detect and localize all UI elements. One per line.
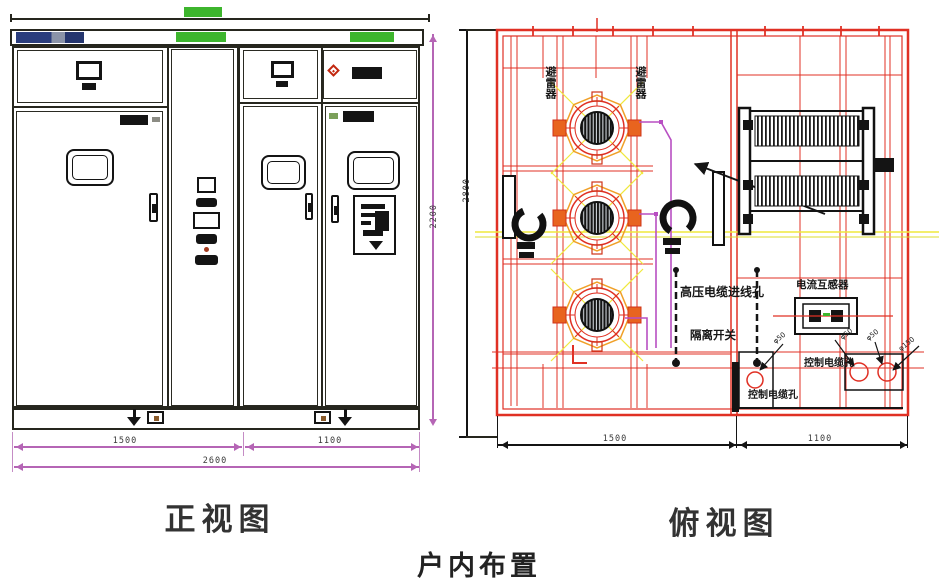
dim-arrow <box>411 463 422 471</box>
door-b-nameplate <box>343 111 374 122</box>
top-dim-1500: 1500 <box>580 435 650 444</box>
red-indicator-dot <box>332 69 335 72</box>
label-arrester-left: 避雷器 <box>542 66 558 114</box>
top-dim-1100: 1100 <box>785 435 855 444</box>
front-view-title: 正视图 <box>160 494 280 539</box>
left-door-tag <box>152 117 160 122</box>
meter-icon-left <box>76 61 102 80</box>
label-isolator: 隔离开关 <box>690 327 736 343</box>
plinth-arrow-2 <box>338 417 352 426</box>
roof-green-strip <box>184 7 222 17</box>
column-button-2 <box>196 234 217 244</box>
top-dim-2800: 2800 <box>463 166 472 214</box>
column-meter-rect <box>193 212 220 229</box>
dim-arrow <box>900 441 911 449</box>
label-current-transformer: 电流互感器 <box>796 277 849 292</box>
dim-arrow <box>736 441 747 449</box>
compartment-b-display <box>352 67 382 79</box>
column-meter-square <box>197 177 216 193</box>
label-control-hole-1: 控制电缆孔 <box>804 354 854 369</box>
mimic-arrow <box>369 241 383 250</box>
mimic-block <box>375 211 389 231</box>
mimic-bar-3 <box>361 221 371 225</box>
front-dim-1500: 1500 <box>90 437 160 446</box>
front-dim-2600: 2600 <box>180 457 250 466</box>
page-caption: 户内布置 <box>404 544 554 582</box>
right-cabinet-divider <box>321 46 323 410</box>
plinth-arrow-1 <box>127 417 141 426</box>
dim-line-2600 <box>14 466 419 468</box>
cabinet-separator <box>237 46 240 410</box>
plinth-box-2-dot <box>321 416 326 421</box>
cap-green-strip-2 <box>350 32 394 42</box>
operator-left <box>503 176 549 258</box>
label-arrester-right: 避雷器 <box>632 66 648 114</box>
phase-coil-1 <box>551 82 643 174</box>
meter-base-right <box>276 81 288 87</box>
bank-terminal-stub <box>874 158 894 172</box>
dim-arrow <box>429 31 437 42</box>
label-control-hole-2: 控制电缆孔 <box>748 386 798 401</box>
phase-coil-3 <box>551 269 643 361</box>
top-view-title: 俯视图 <box>664 498 784 543</box>
door-a-window-inner <box>267 161 300 184</box>
left-door-nameplate <box>120 115 148 125</box>
dim-arrow <box>12 463 23 471</box>
left-door-window-inner <box>72 155 108 180</box>
tv-dim-line-1100 <box>737 444 907 446</box>
column-red-dot <box>204 247 209 252</box>
dim-line-1500 <box>14 446 242 448</box>
resistor-bank <box>739 108 894 234</box>
dim-arrow <box>411 443 422 451</box>
left-compartment-bottom-line <box>14 106 167 108</box>
tv-dim-line-1500 <box>498 444 736 446</box>
door-a-handle <box>305 193 313 220</box>
column-button-3 <box>195 255 218 265</box>
dim-line-1100 <box>245 446 419 448</box>
cabinet-plinth <box>12 406 420 430</box>
door-b-window-inner <box>353 157 394 184</box>
left-door-handle <box>149 193 158 222</box>
phase-coil-2 <box>551 172 643 264</box>
dim-arrow <box>429 419 437 430</box>
label-cable-entry: 高压电缆进线孔 <box>680 283 764 300</box>
nameplate-blue <box>16 32 84 43</box>
right-cabinet-door-a <box>243 106 318 406</box>
dim-arrow <box>243 443 254 451</box>
left-cabinet-column-divider <box>167 46 169 410</box>
plinth-box-1-dot <box>154 416 159 421</box>
door-a-handle-grip <box>308 203 311 212</box>
plinth-box-1 <box>147 411 164 424</box>
meter-icon-right <box>271 61 294 78</box>
cap-green-strip-1 <box>176 32 226 42</box>
top-boundary-tick-left <box>10 14 12 22</box>
mimic-bar-1 <box>361 204 385 209</box>
column-button-1 <box>196 198 217 207</box>
front-dim-1100: 1100 <box>295 437 365 446</box>
right-compartment-bottom-line <box>240 102 418 104</box>
dim-line-2800 <box>466 30 468 438</box>
drawing-sheet: 1500 1100 2600 2200 2800 <box>0 0 944 582</box>
left-door-handle-grip <box>152 204 156 213</box>
door-b-handle <box>331 195 339 223</box>
door-b-handle-grip <box>334 206 337 215</box>
front-dim-2200: 2200 <box>430 192 439 240</box>
dim-arrow <box>12 443 23 451</box>
top-boundary-tick-right <box>428 14 430 22</box>
top-boundary-line <box>10 18 430 20</box>
door-b-mimic-panel <box>353 195 396 255</box>
plinth-box-2 <box>314 411 331 424</box>
mimic-bar-4 <box>363 230 383 236</box>
door-b-green-tag <box>329 113 338 119</box>
dim-arrow <box>497 441 508 449</box>
meter-base-left <box>82 83 96 90</box>
